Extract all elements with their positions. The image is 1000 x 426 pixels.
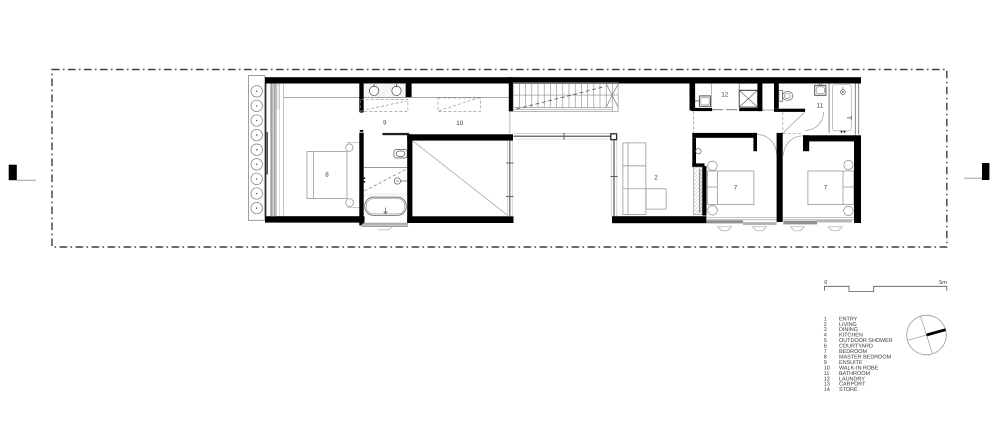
svg-text:7: 7	[824, 185, 828, 192]
svg-text:5m: 5m	[939, 280, 947, 286]
svg-text:8: 8	[325, 171, 329, 178]
svg-text:0: 0	[824, 280, 827, 286]
svg-text:12: 12	[721, 92, 729, 99]
svg-text:14: 14	[824, 387, 830, 393]
svg-text:STORE: STORE	[839, 387, 858, 393]
svg-text:2: 2	[654, 175, 658, 182]
svg-text:7: 7	[734, 185, 738, 192]
svg-text:10: 10	[456, 120, 464, 127]
svg-text:9: 9	[383, 120, 387, 127]
svg-text:11: 11	[817, 103, 824, 110]
